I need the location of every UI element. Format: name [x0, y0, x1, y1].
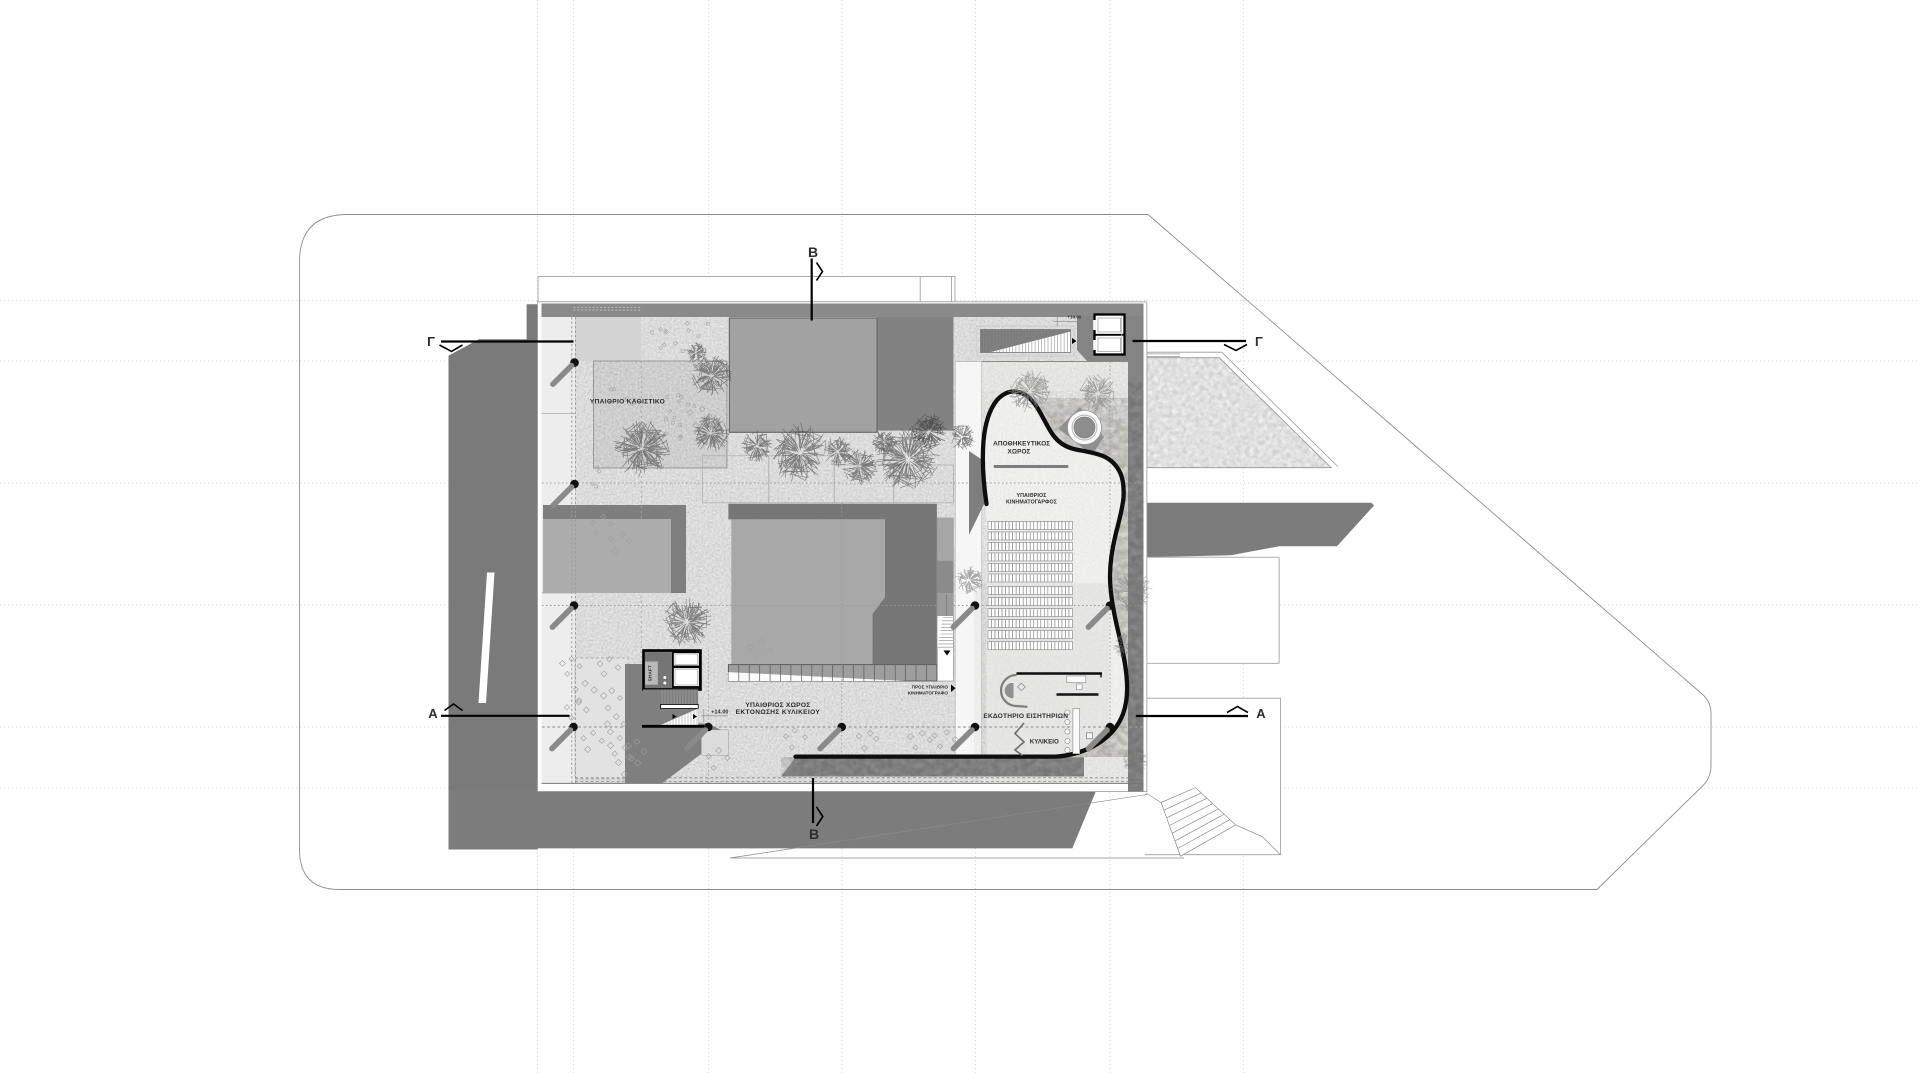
svg-text:ΧΩΡΟΣ: ΧΩΡΟΣ — [1008, 449, 1031, 456]
svg-text:SHAFT: SHAFT — [647, 665, 652, 681]
svg-text:ΥΠΑΙΘΡΙΟ ΚΑΘΙΣΤΙΚΟ: ΥΠΑΙΘΡΙΟ ΚΑΘΙΣΤΙΚΟ — [590, 398, 665, 405]
svg-text:ΕΚΔΟΤΗΡΙΟ ΕΙΣΗΤΗΡΙΩΝ: ΕΚΔΟΤΗΡΙΟ ΕΙΣΗΤΗΡΙΩΝ — [983, 713, 1068, 720]
svg-text:A: A — [428, 706, 438, 721]
svg-text:+14.00: +14.00 — [1067, 315, 1082, 320]
svg-text:ΑΠΟΘΗΚΕΥΤΙΚΟΣ: ΑΠΟΘΗΚΕΥΤΙΚΟΣ — [993, 441, 1050, 448]
svg-text:A: A — [1256, 706, 1266, 721]
svg-text:ΠΡΟΣ ΥΠΑΙΘΡΙΟ: ΠΡΟΣ ΥΠΑΙΘΡΙΟ — [912, 684, 949, 689]
svg-text:Γ: Γ — [1255, 334, 1263, 349]
svg-text:B: B — [809, 826, 819, 842]
svg-text:ΚΙΝΗΜΑΤΟΓΑΡΦΟΣ: ΚΙΝΗΜΑΤΟΓΑΡΦΟΣ — [1006, 499, 1058, 505]
svg-text:ΚΙΝΗΜΑΤΟΓΡΑΦΟ: ΚΙΝΗΜΑΤΟΓΡΑΦΟ — [908, 691, 949, 696]
svg-text:ΕΚΤΟΝΩΣΗΣ ΚΥΛΙΚΕΙΟΥ: ΕΚΤΟΝΩΣΗΣ ΚΥΛΙΚΕΙΟΥ — [736, 709, 821, 716]
svg-text:+14.00: +14.00 — [711, 710, 728, 716]
svg-text:ΚΥΛΙΚΕΙΟ: ΚΥΛΙΚΕΙΟ — [1030, 738, 1059, 745]
svg-text:B: B — [808, 244, 818, 260]
svg-text:Γ: Γ — [427, 334, 435, 349]
svg-text:ΥΠΑΙΘΡΙΟΣ: ΥΠΑΙΘΡΙΟΣ — [1017, 493, 1048, 499]
